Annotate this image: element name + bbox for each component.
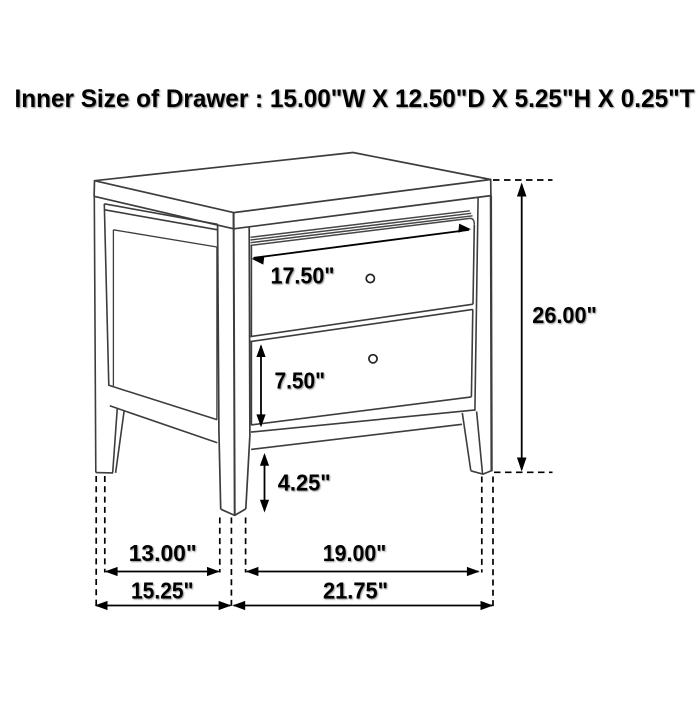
svg-text:13.00": 13.00" [129, 540, 197, 566]
svg-text:19.00": 19.00" [323, 540, 387, 566]
svg-text:7.50": 7.50" [275, 368, 326, 394]
svg-text:26.00": 26.00" [532, 302, 597, 328]
svg-text:4.25": 4.25" [278, 470, 331, 496]
svg-text:15.25": 15.25" [131, 578, 194, 604]
svg-text:17.50": 17.50" [271, 262, 335, 288]
svg-text:Inner Size of Drawer : 15.00"W: Inner Size of Drawer : 15.00"W X 12.50"D… [15, 85, 695, 113]
svg-text:21.75": 21.75" [323, 578, 388, 604]
